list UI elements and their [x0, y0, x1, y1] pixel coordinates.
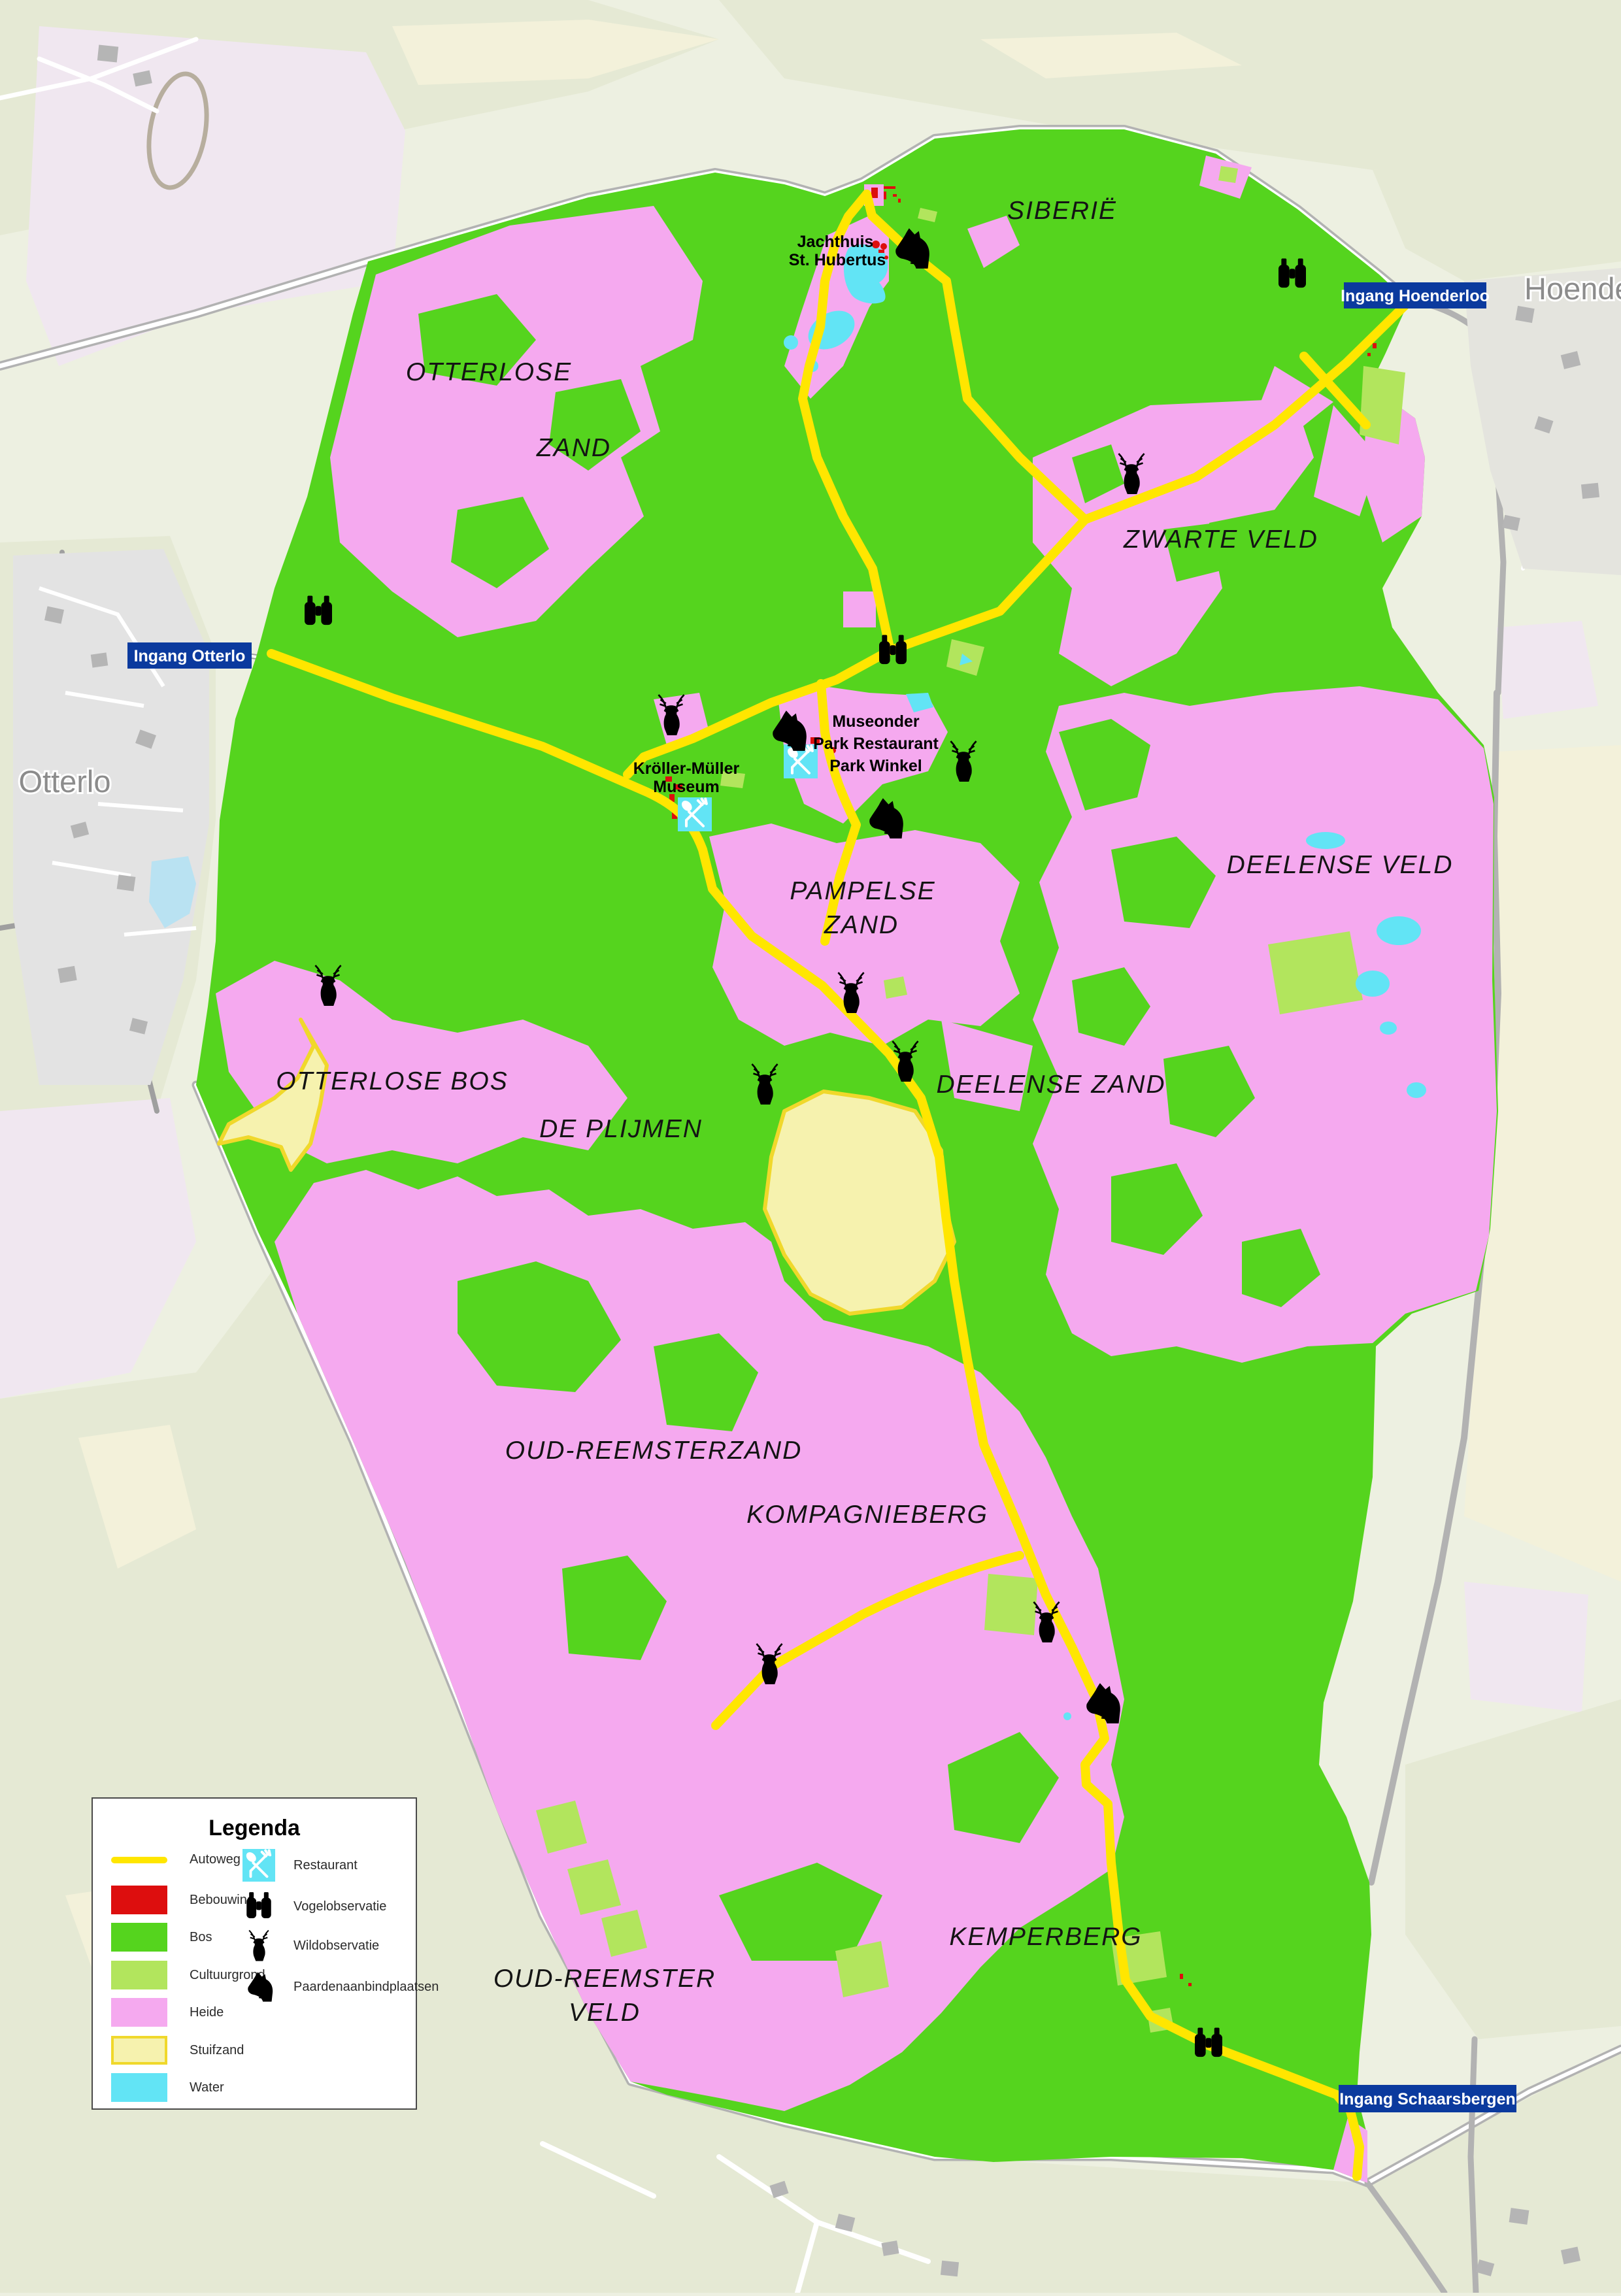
legend-item-bos: Bos: [111, 1923, 212, 1952]
region-label-siberie: SIBERIË: [1007, 197, 1117, 225]
legend-item-vogelobservatie: Vogelobservatie: [242, 1890, 386, 1923]
bos-swatch: [111, 1923, 167, 1952]
entrance-badge-otterlo-label: Ingang Otterlo: [134, 647, 246, 665]
legend-item-restaurant: Restaurant: [242, 1849, 358, 1882]
region-label-oud-reemsterzand: OUD-REEMSTERZAND: [505, 1437, 803, 1465]
cultuurgrond-swatch: [111, 1961, 167, 1989]
poi-label-kroller-muller: Museum: [653, 778, 719, 796]
legend-item-heide: Heide: [111, 1998, 224, 2027]
legend-panel: Legenda Autoweg Bebouwing Bos Cultuurgro…: [92, 1797, 417, 2110]
bebouwing-swatch: [111, 1886, 167, 1914]
restaurant-icon: [678, 797, 712, 831]
entrance-badge-schaarsbergen: Ingang Schaarsbergen: [1339, 2085, 1516, 2112]
region-label-otterlose-bos: OTTERLOSE BOS: [276, 1067, 508, 1095]
legend-item-bebouwing: Bebouwing: [111, 1886, 254, 1914]
water-swatch: [111, 2073, 167, 2102]
entrance-badge-schaarsbergen-label: Ingang Schaarsbergen: [1339, 2090, 1516, 2108]
poi-label-jachthuis: St. Hubertus: [789, 251, 886, 269]
region-label-otterlose-zand: OTTERLOSE: [406, 358, 572, 386]
legend-item-autoweg: Autoweg: [111, 1852, 241, 1867]
legend-label: Paardenaanbindplaatsen: [293, 1980, 439, 1995]
entrance-badge-hoenderloo-label: Ingang Hoenderloo: [1341, 287, 1490, 305]
region-label-pampelse-zand: ZAND: [824, 911, 899, 939]
region-label-pampelse-zand: PAMPELSE: [790, 877, 935, 905]
region-label-kemperberg: KEMPERBERG: [949, 1923, 1142, 1951]
heide-swatch: [111, 1998, 167, 2027]
restaurant-icon: [242, 1849, 275, 1882]
legend-label: Stuifzand: [190, 2043, 244, 2058]
park-map: SIBERIË OTTERLOSE ZAND ZWARTE VELD DEELE…: [0, 0, 1621, 2293]
legend-item-paardenaanbindplaatsen: Paardenaanbindplaatsen: [242, 1971, 439, 2003]
region-label-oud-reemster-veld: OUD-REEMSTER: [493, 1965, 716, 1993]
town-label-otterlo: Otterlo: [18, 764, 110, 799]
legend-label: Bos: [190, 1930, 212, 1945]
legend-title: Legenda: [93, 1816, 416, 1841]
poi-label-park-restaurant: Park Restaurant: [813, 735, 939, 753]
legend-label: Restaurant: [293, 1858, 358, 1873]
binoculars-icon: [242, 1890, 275, 1923]
region-label-deelense-zand: DEELENSE ZAND: [936, 1071, 1165, 1099]
legend-item-stuifzand: Stuifzand: [111, 2036, 244, 2065]
autoweg-swatch: [111, 1857, 167, 1863]
poi-label-kroller-muller: Kröller-Müller: [633, 759, 740, 778]
legend-item-water: Water: [111, 2073, 224, 2102]
legend-item-wildobservatie: Wildobservatie: [242, 1929, 379, 1962]
deer-icon: [242, 1929, 275, 1962]
region-label-deelense-veld: DEELENSE VELD: [1227, 851, 1454, 879]
region-label-oud-reemster-veld: VELD: [569, 1999, 641, 2027]
poi-label-park-winkel: Park Winkel: [829, 757, 922, 775]
legend-label: Heide: [190, 2005, 224, 2020]
legend-label: Water: [190, 2080, 224, 2095]
town-label-hoenderloo: Hoenderloo: [1524, 271, 1621, 306]
horse-icon: [242, 1971, 275, 2003]
region-label-zwarte-veld: ZWARTE VELD: [1123, 525, 1318, 554]
region-label-de-plijmen: DE PLIJMEN: [539, 1115, 703, 1143]
stuifzand-swatch: [111, 2036, 167, 2065]
region-label-kompagnieberg: KOMPAGNIEBERG: [746, 1501, 988, 1529]
legend-label: Vogelobservatie: [293, 1899, 386, 1914]
entrance-badge-otterlo: Ingang Otterlo: [127, 642, 252, 669]
legend-label: Wildobservatie: [293, 1938, 379, 1954]
legend-label: Autoweg: [190, 1852, 241, 1867]
poi-label-jachthuis: Jachthuis: [797, 233, 874, 251]
entrance-badge-hoenderloo: Ingang Hoenderloo: [1341, 282, 1490, 308]
region-label-otterlose-zand: ZAND: [536, 434, 611, 462]
poi-label-museonder: Museonder: [832, 712, 920, 731]
